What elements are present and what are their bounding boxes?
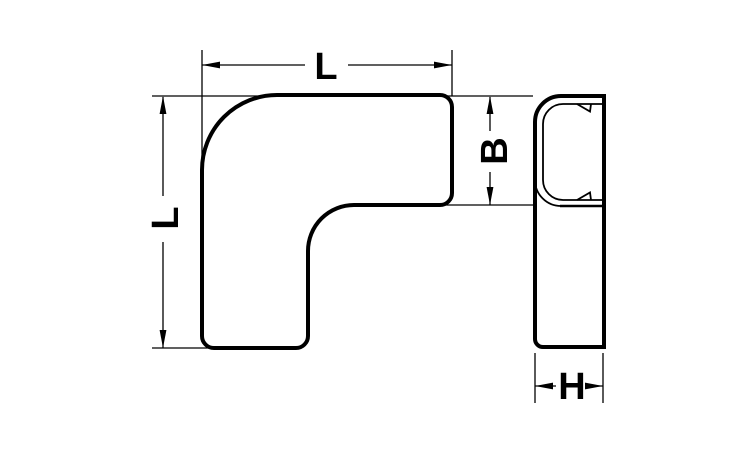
arrowhead-h-right-icon xyxy=(585,383,603,390)
dim-label-l-left: L xyxy=(145,206,187,229)
latch-notch-bottom-icon xyxy=(577,193,591,201)
technical-drawing-canvas: L L B H xyxy=(0,0,750,450)
side-view-inner-profile xyxy=(543,104,602,200)
arrowhead-l-top-left-icon xyxy=(202,62,220,69)
dim-label-l-top: L xyxy=(314,46,337,88)
front-view-elbow-outline xyxy=(202,95,452,348)
side-view xyxy=(535,96,604,347)
dim-label-b: B xyxy=(474,137,516,164)
arrowhead-b-down-icon xyxy=(487,187,494,205)
arrowhead-l-top-right-icon xyxy=(434,62,452,69)
side-view-outline xyxy=(535,96,604,347)
arrowhead-l-left-up-icon xyxy=(160,96,167,114)
elbow-dimension-drawing: L L B H xyxy=(0,0,750,450)
arrowhead-l-left-down-icon xyxy=(160,330,167,348)
arrowhead-b-up-icon xyxy=(487,96,494,114)
arrowhead-h-left-icon xyxy=(535,383,553,390)
latch-notch-top-icon xyxy=(577,104,591,112)
dim-label-h: H xyxy=(558,366,585,408)
